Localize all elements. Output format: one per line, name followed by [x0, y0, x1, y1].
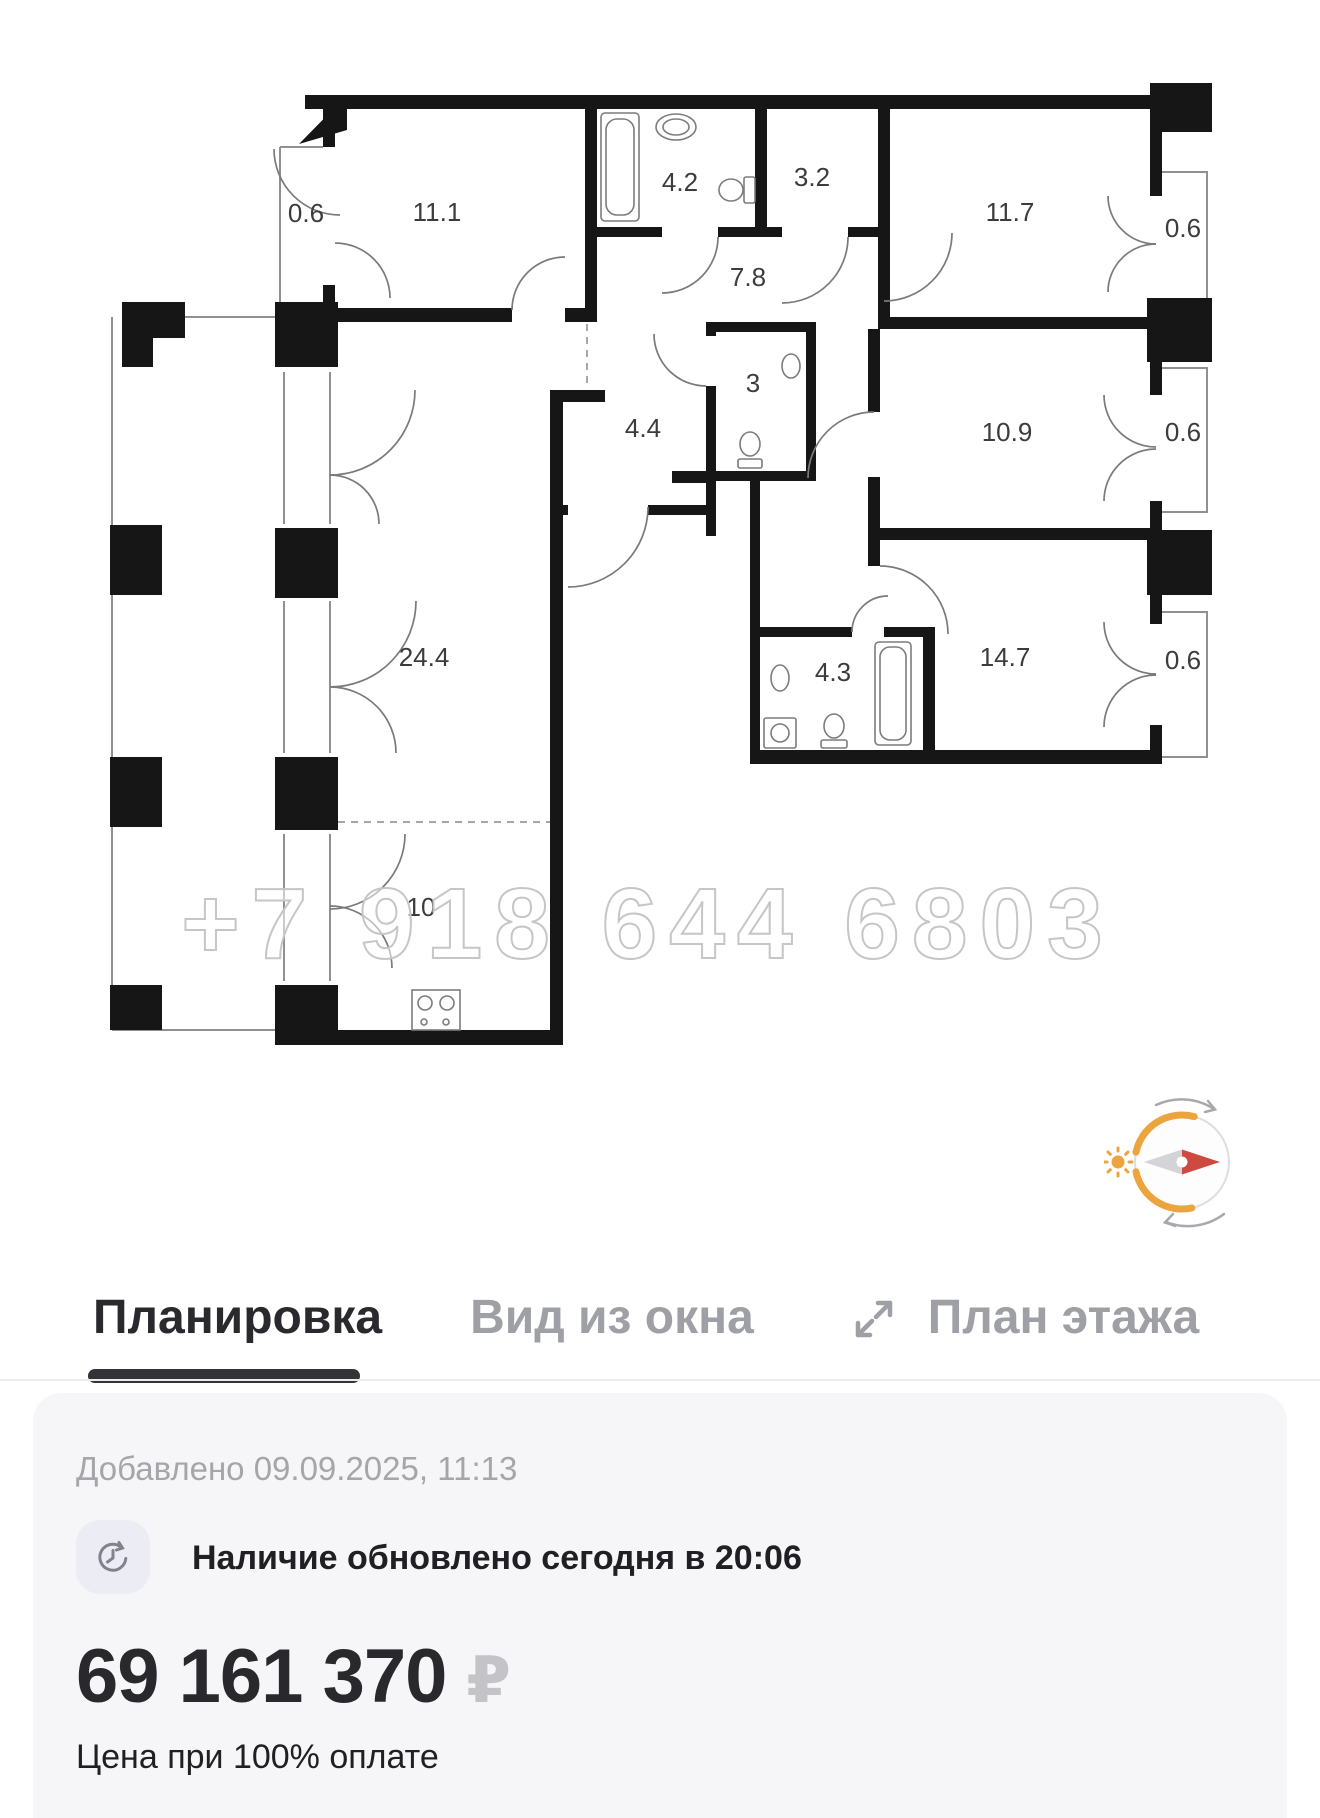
price-note: Цена при 100% оплате [76, 1738, 439, 1777]
toilet-icon [821, 740, 847, 748]
expand-icon [851, 1296, 897, 1342]
tab-plan-etazha[interactable]: План этажа [851, 1292, 1199, 1344]
price-currency: ₽ [466, 1644, 510, 1718]
room-area-label: 0.6 [288, 198, 324, 228]
toilet-icon [738, 459, 762, 468]
room-area-label: 0.6 [1165, 645, 1201, 675]
media-tabs: Планировка Вид из окна План этажа [0, 1292, 1320, 1352]
stove-icon [412, 990, 460, 1030]
room-area-label: 3 [746, 368, 760, 398]
room-area-label: 0.6 [1165, 213, 1201, 243]
door-arcs [274, 149, 1156, 968]
dashed-lines [338, 324, 587, 822]
tab-vid-iz-okna[interactable]: Вид из окна [470, 1292, 754, 1344]
room-area-label: 14.7 [980, 642, 1031, 672]
room-area-label: 7.8 [730, 262, 766, 292]
listing-screen: 0.6 11.1 4.2 3.2 11.7 0.6 7.8 3 4.4 10.9… [0, 0, 1320, 1818]
tab-planirovka[interactable]: Планировка [93, 1292, 382, 1344]
room-area-label: 10.9 [982, 417, 1033, 447]
sun-icon [1104, 1148, 1132, 1176]
compass-widget[interactable] [1104, 1090, 1264, 1250]
added-date-text: Добавлено 09.09.2025, 11:13 [76, 1450, 517, 1488]
watermark-phone: +7 918 644 6803 [181, 868, 1115, 980]
room-area-label: 24.4 [399, 642, 450, 672]
room-area-label: 11.7 [986, 197, 1035, 227]
floor-plan-image: 0.6 11.1 4.2 3.2 11.7 0.6 7.8 3 4.4 10.9… [0, 0, 1320, 1085]
room-area-label: 4.4 [625, 413, 661, 443]
availability-text: Наличие обновлено сегодня в 20:06 [192, 1539, 802, 1578]
washer-icon [764, 718, 796, 748]
clock-refresh-icon [93, 1537, 133, 1577]
price-amount: 69 161 370 [76, 1634, 446, 1719]
toilet-icon [744, 177, 755, 203]
room-area-label: 4.3 [815, 657, 851, 687]
tab-plan-etazha-label: План этажа [928, 1292, 1199, 1344]
price-value: 69 161 370₽ [76, 1633, 510, 1720]
room-area-label: 0.6 [1165, 417, 1201, 447]
price-info-card: Добавлено 09.09.2025, 11:13 Наличие обно… [33, 1393, 1287, 1818]
sink-icon [782, 354, 800, 378]
room-area-label: 3.2 [794, 162, 830, 192]
room-area-label: 4.2 [662, 167, 698, 197]
availability-icon-badge [76, 1520, 150, 1594]
sink-icon [656, 114, 696, 140]
sink-icon [771, 665, 789, 691]
room-area-label: 11.1 [413, 197, 462, 227]
tabs-separator [0, 1379, 1320, 1381]
